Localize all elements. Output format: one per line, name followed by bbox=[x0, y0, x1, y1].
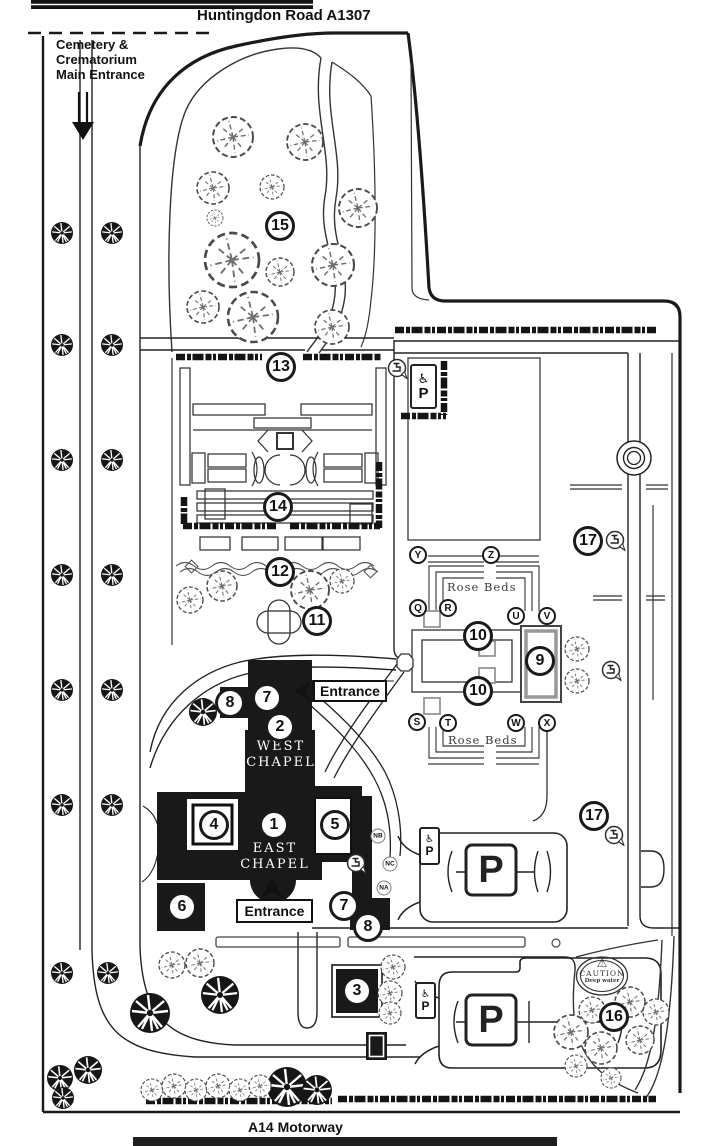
niche-marker-NA: NA bbox=[377, 881, 392, 896]
main-entrance-note-line3: Main Entrance bbox=[56, 67, 145, 82]
rose-bed-marker-Q: Q bbox=[409, 599, 427, 617]
caution-deep-water-sign: ⚠ CAUTION Deep water bbox=[571, 957, 633, 984]
rose-bed-marker-W: W bbox=[507, 714, 525, 732]
main-entrance-note: Cemetery & Crematorium Main Entrance bbox=[56, 37, 145, 82]
disabled-parking-sign-mid: ♿ P bbox=[419, 827, 440, 865]
main-entrance-note-line2: Crematorium bbox=[56, 52, 137, 67]
wheelchair-icon: ♿ bbox=[421, 990, 430, 1000]
parking-letter: P bbox=[418, 386, 428, 401]
wheelchair-icon: ♿ bbox=[418, 373, 430, 386]
map-marker-4: 4 bbox=[199, 810, 229, 840]
rose-bed-marker-S: S bbox=[408, 713, 426, 731]
disabled-parking-sign-north: ♿ P bbox=[410, 364, 437, 409]
east-chapel-line1: EAST bbox=[253, 841, 297, 856]
road-label-huntingdon: Huntingdon Road A1307 bbox=[197, 7, 371, 24]
caution-subtitle: Deep water bbox=[571, 978, 633, 984]
niche-marker-NB: NB bbox=[371, 829, 386, 844]
map-marker-15: 15 bbox=[265, 211, 295, 241]
map-marker-17: 17 bbox=[573, 526, 603, 556]
rose-beds-label-north: Rose Beds bbox=[447, 580, 516, 594]
map-marker-17: 17 bbox=[579, 801, 609, 831]
rose-bed-marker-X: X bbox=[538, 714, 556, 732]
rose-bed-marker-T: T bbox=[439, 714, 457, 732]
east-chapel-label: EAST CHAPEL bbox=[238, 841, 312, 873]
map-marker-11: 11 bbox=[302, 606, 332, 636]
rose-bed-marker-U: U bbox=[507, 607, 525, 625]
rose-bed-marker-Z: Z bbox=[482, 546, 500, 564]
west-chapel-line2: CHAPEL bbox=[246, 755, 316, 770]
map-marker-6: 6 bbox=[167, 892, 197, 922]
map-marker-1: 1 bbox=[259, 810, 289, 840]
cemetery-site-map: Huntingdon Road A1307 Cemetery & Cremato… bbox=[0, 0, 720, 1146]
map-marker-8: 8 bbox=[215, 688, 245, 718]
disabled-parking-sign-south: ♿ P bbox=[415, 982, 436, 1019]
east-chapel-line2: CHAPEL bbox=[240, 857, 310, 872]
road-label-a14: A14 Motorway bbox=[248, 1119, 343, 1135]
rose-bed-marker-Y: Y bbox=[409, 546, 427, 564]
map-marker-5: 5 bbox=[320, 810, 350, 840]
map-marker-3: 3 bbox=[342, 976, 372, 1006]
rose-bed-marker-R: R bbox=[439, 599, 457, 617]
map-marker-13: 13 bbox=[266, 352, 296, 382]
car-park-north-p: P bbox=[466, 845, 516, 895]
map-marker-10: 10 bbox=[463, 676, 493, 706]
map-marker-12: 12 bbox=[265, 557, 295, 587]
warning-triangle-icon: ⚠ bbox=[571, 957, 633, 969]
west-chapel-label: WEST CHAPEL bbox=[244, 739, 318, 771]
parking-letter: P bbox=[421, 1000, 429, 1012]
map-marker-7: 7 bbox=[329, 891, 359, 921]
map-marker-9: 9 bbox=[525, 646, 555, 676]
niche-marker-NC: NC bbox=[383, 857, 398, 872]
map-marker-7: 7 bbox=[252, 683, 282, 713]
rose-bed-marker-V: V bbox=[538, 607, 556, 625]
main-entrance-note-line1: Cemetery & bbox=[56, 37, 128, 52]
map-marker-14: 14 bbox=[263, 492, 293, 522]
rose-beds-label-south: Rose Beds bbox=[448, 733, 517, 747]
east-entrance-label: Entrance bbox=[236, 899, 313, 923]
car-park-south-p: P bbox=[466, 995, 516, 1045]
west-entrance-label: Entrance bbox=[313, 680, 387, 702]
map-marker-8: 8 bbox=[353, 912, 383, 942]
caution-title: CAUTION bbox=[571, 969, 633, 978]
map-marker-2: 2 bbox=[265, 712, 295, 742]
map-marker-16: 16 bbox=[599, 1002, 629, 1032]
parking-letter: P bbox=[425, 845, 433, 857]
map-marker-10: 10 bbox=[463, 621, 493, 651]
